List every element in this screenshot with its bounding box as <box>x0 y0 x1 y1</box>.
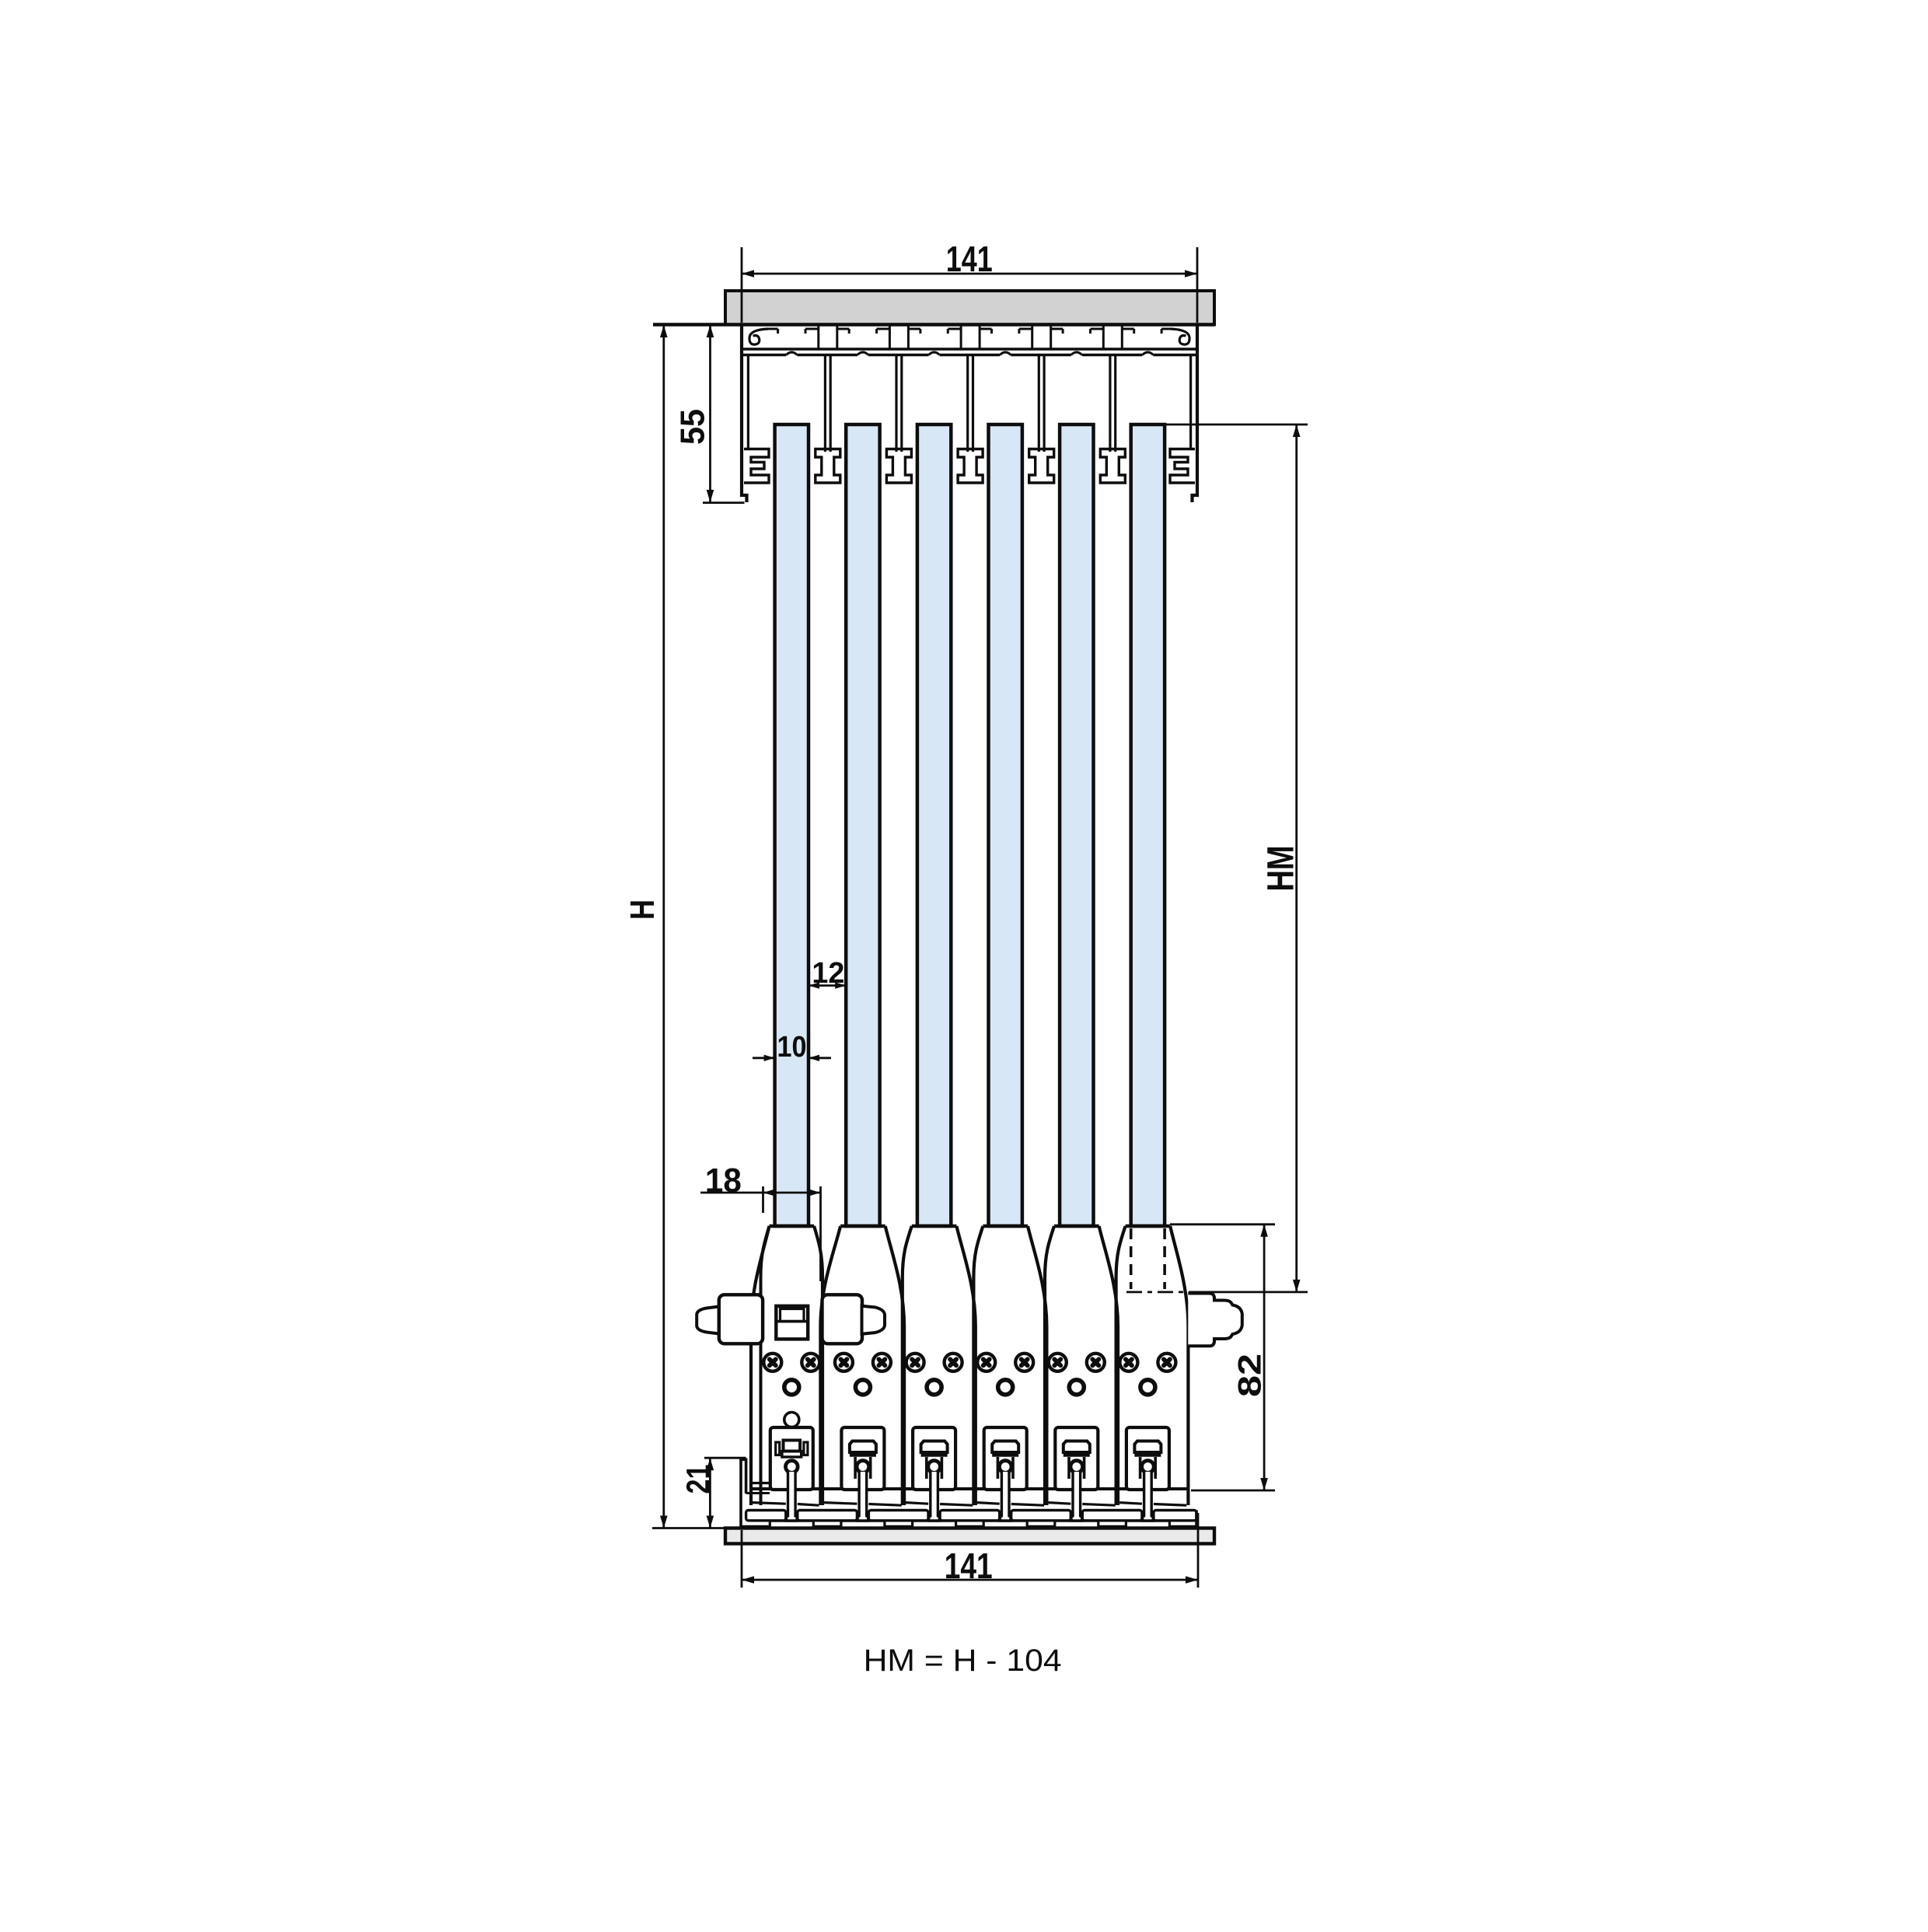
svg-text:82: 82 <box>1231 1354 1268 1397</box>
svg-text:10: 10 <box>777 1031 807 1064</box>
svg-text:12: 12 <box>812 957 844 990</box>
svg-text:H: H <box>623 900 662 920</box>
svg-text:141: 141 <box>945 1546 993 1586</box>
svg-text:55: 55 <box>674 409 712 445</box>
svg-text:141: 141 <box>946 239 993 279</box>
svg-text:21: 21 <box>679 1465 716 1494</box>
svg-text:HM: HM <box>1260 846 1301 892</box>
svg-text:HM = H - 104: HM = H - 104 <box>864 1644 1062 1678</box>
svg-text:18: 18 <box>705 1162 742 1200</box>
